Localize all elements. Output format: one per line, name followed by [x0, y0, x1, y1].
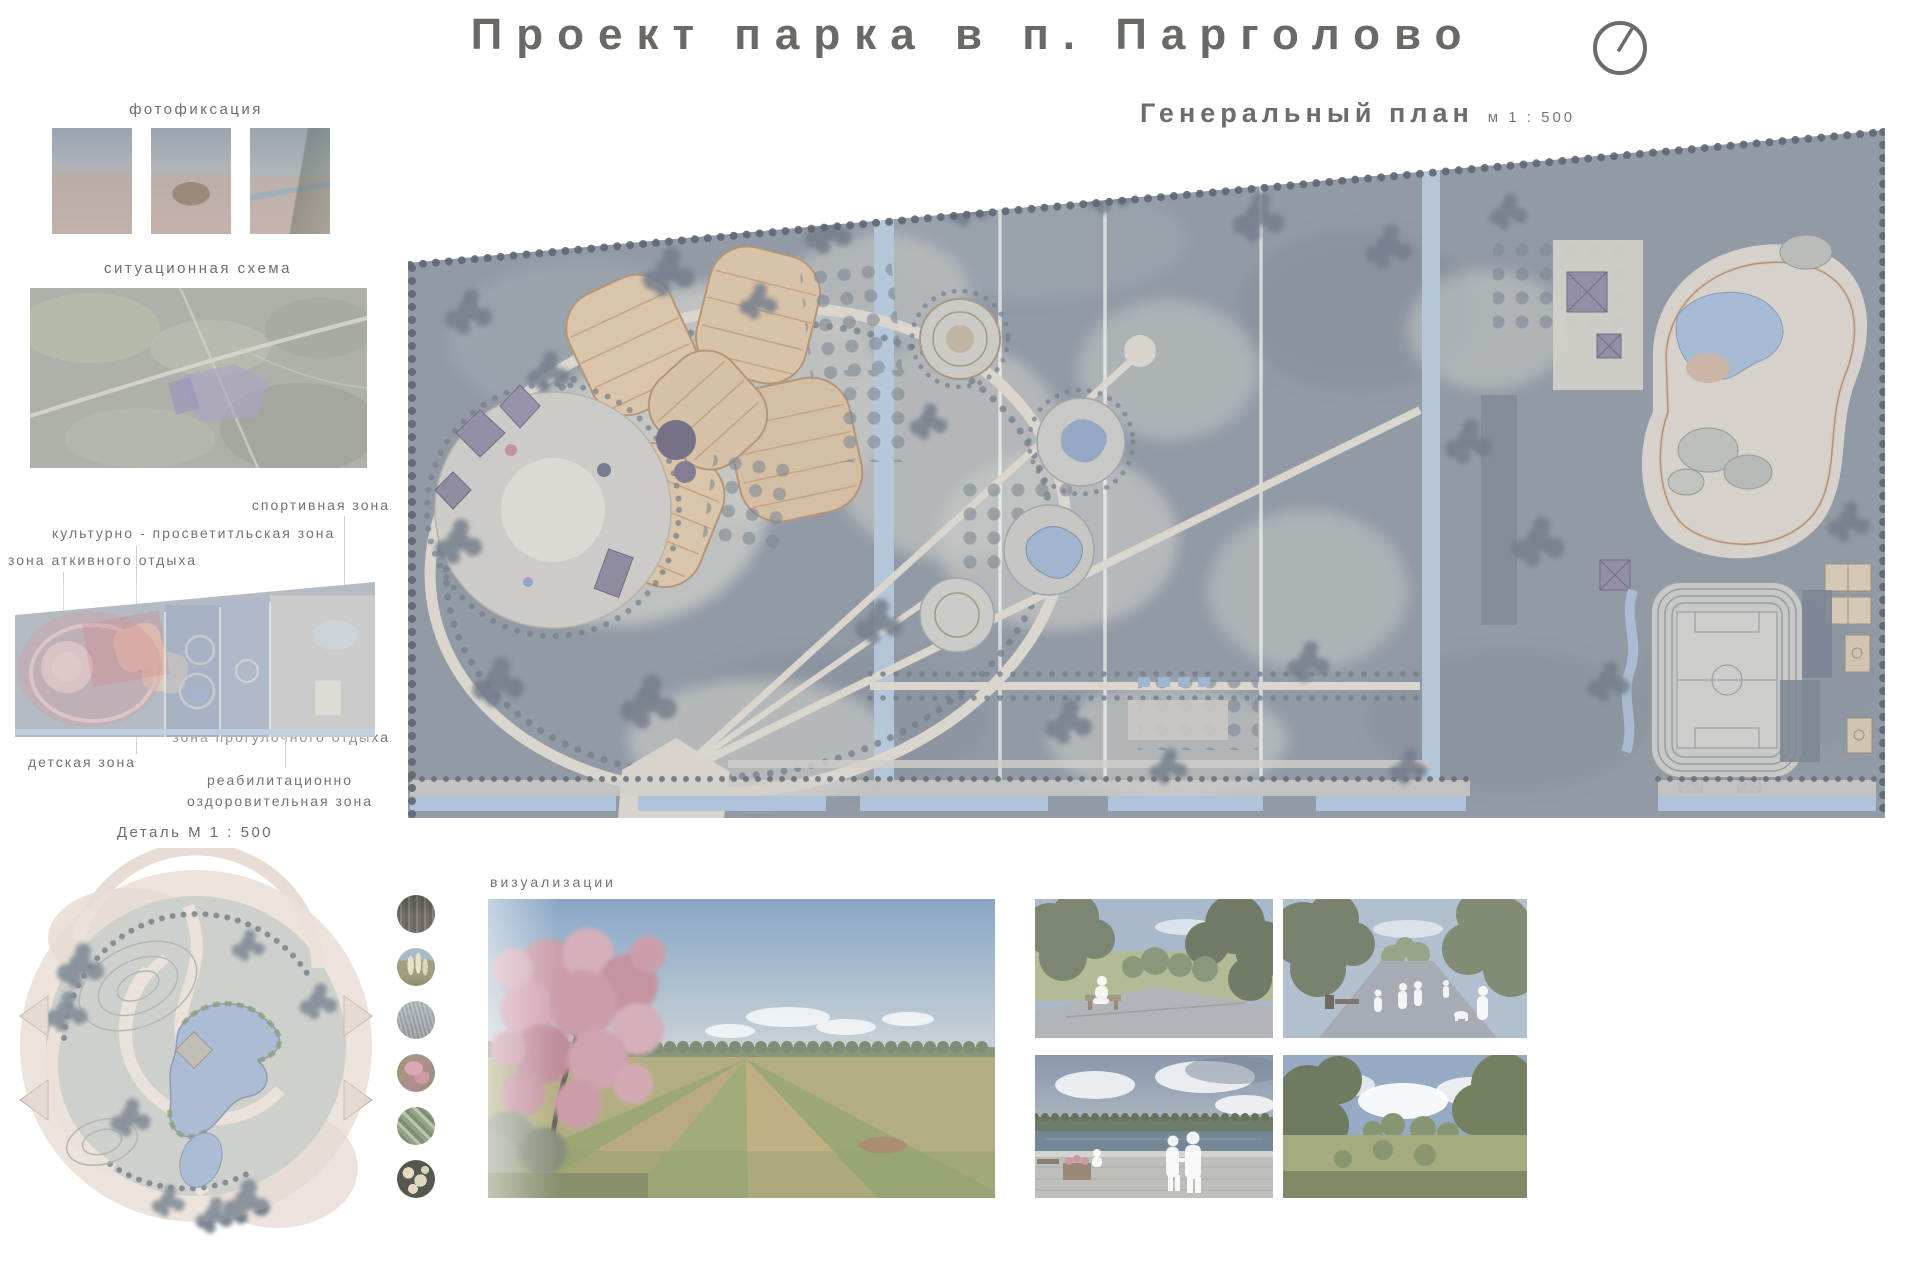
- zone-label-children: детская зона: [28, 754, 136, 770]
- presentation-board: Проект парка в п. Парголово Генеральный …: [0, 0, 1920, 1268]
- zone-label-sport: спортивная зона: [252, 497, 390, 513]
- zone-label-active: зона аткивного отдыха: [8, 552, 197, 568]
- zone-label-rehab: реабилитационно оздоровительная зона: [150, 770, 410, 812]
- photofixation-row: [52, 128, 330, 234]
- situation-aerial-map: [30, 288, 367, 468]
- plant-photo-grass: [397, 1001, 435, 1039]
- detail-plan-drawing: [18, 848, 374, 1252]
- detail-plan-label: Деталь М 1 : 500: [100, 824, 290, 841]
- north-arrow-icon: [1590, 16, 1652, 78]
- plant-photo-column: [397, 895, 435, 1198]
- render-blossom-meadow: [488, 899, 995, 1198]
- visualizations-label: визуализации: [490, 874, 616, 890]
- plant-photo-reeds: [397, 895, 435, 933]
- plant-photo-flower-spikes: [397, 948, 435, 986]
- page-title: Проект парка в п. Парголово: [408, 10, 1538, 60]
- plant-photo-pink-tamarix: [397, 1054, 435, 1092]
- zone-label-cultural: культурно - просветитльская зона: [52, 525, 335, 541]
- render-meadow-clearing: [1283, 1055, 1527, 1198]
- render-park-alley: [1283, 899, 1527, 1038]
- render-garden-bench: [1035, 899, 1273, 1038]
- photofixation-label: фотофиксация: [50, 101, 342, 118]
- situation-scheme-label: ситуационная схема: [60, 260, 336, 277]
- site-photo-1: [52, 128, 132, 234]
- plant-photo-yarrow: [397, 1160, 435, 1198]
- render-waterfront: [1035, 1055, 1273, 1198]
- site-photo-3: [250, 128, 330, 234]
- zoning-minimap: [15, 577, 375, 742]
- masterplan-drawing: [408, 120, 1885, 820]
- plant-photo-sage-leaves: [397, 1107, 435, 1145]
- site-photo-2: [151, 128, 231, 234]
